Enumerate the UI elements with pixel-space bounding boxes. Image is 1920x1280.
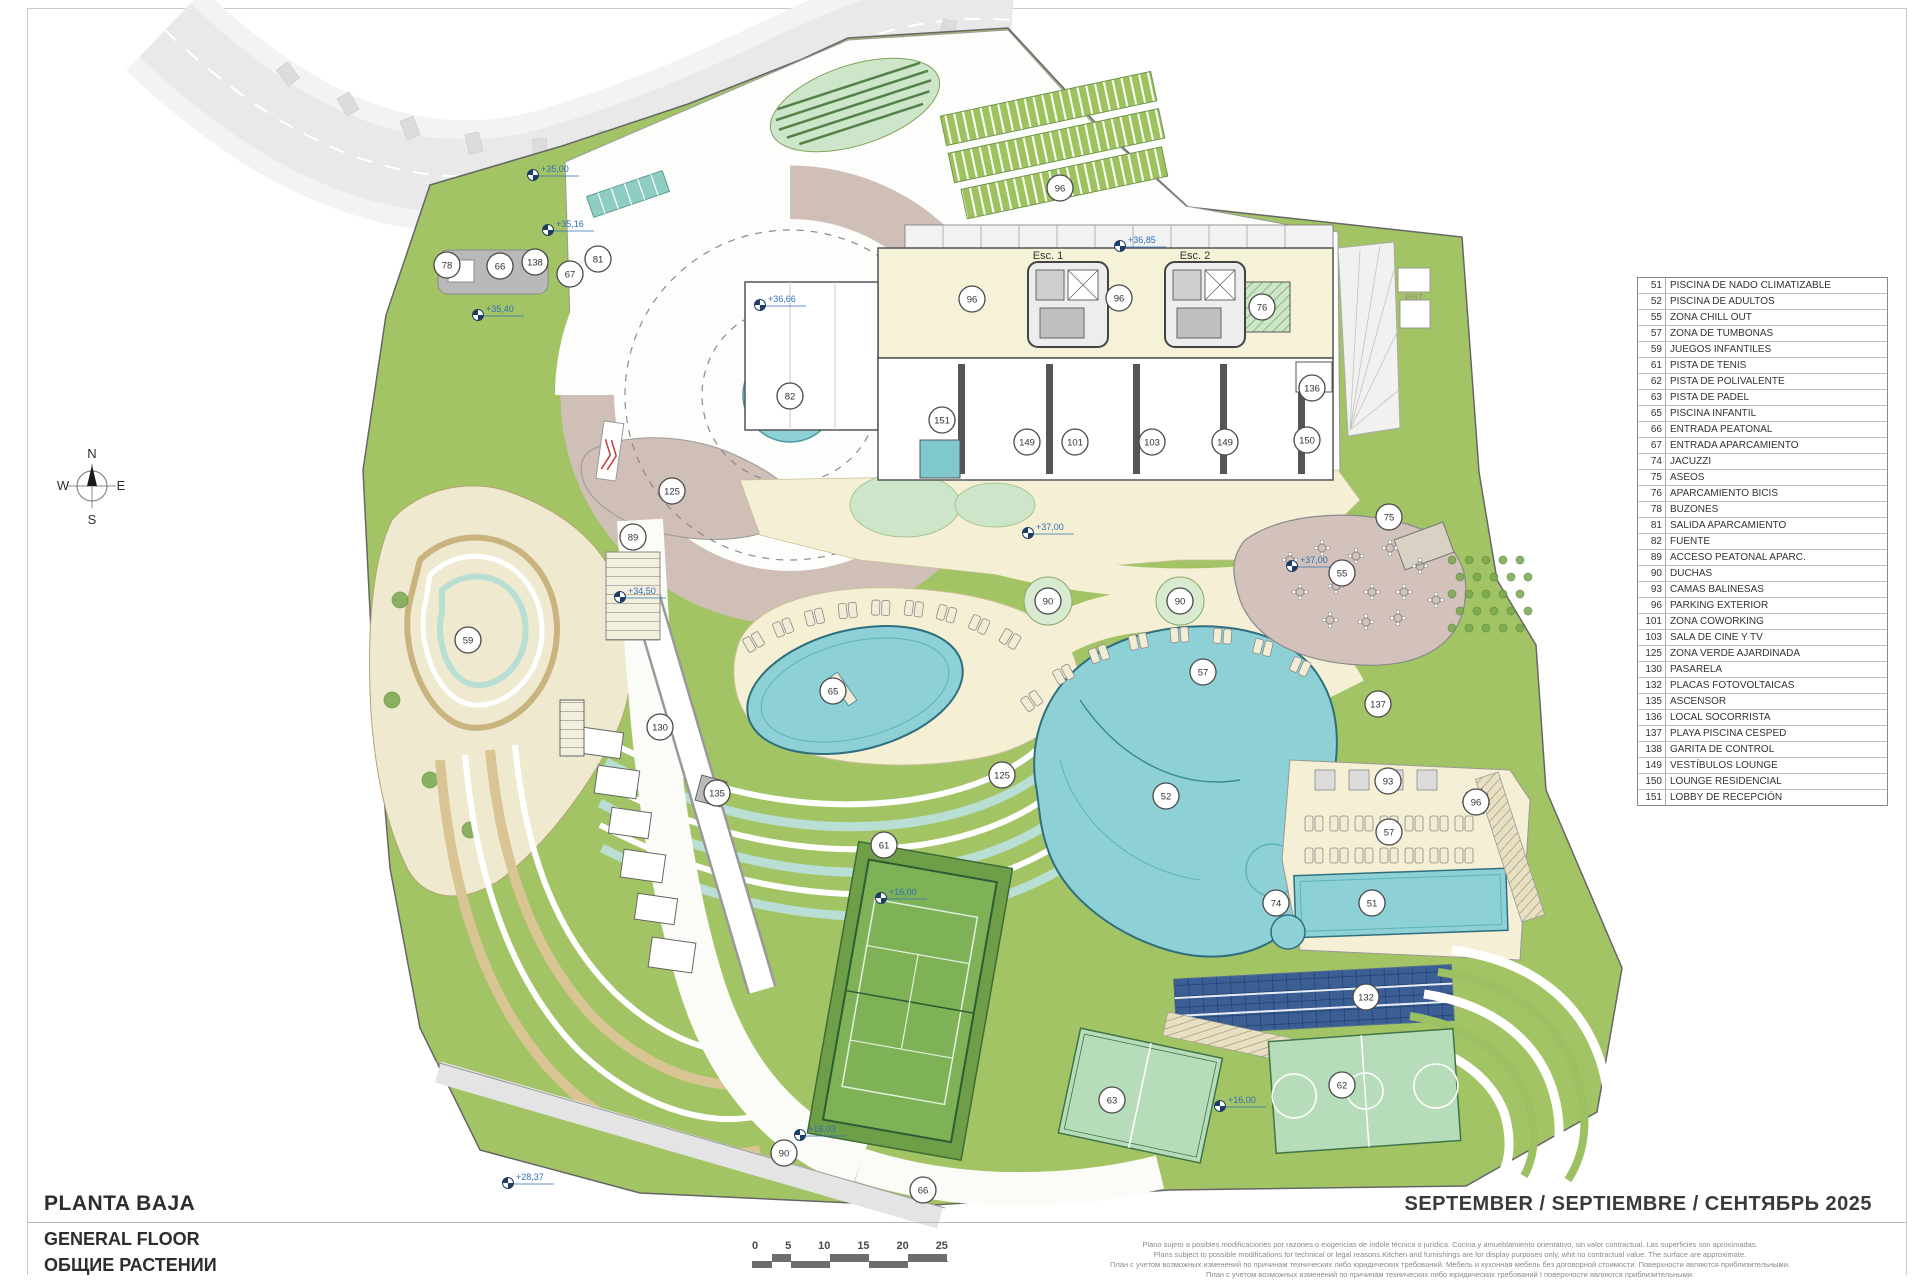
svg-text:136: 136 [1304, 383, 1320, 394]
title-rule [27, 1222, 1906, 1223]
jacuzzi [1271, 915, 1305, 949]
scale-bar: 0510152025 [752, 1240, 948, 1269]
keynote-52: 52 [1153, 783, 1179, 809]
keynote-90: 90 [1167, 588, 1193, 614]
keynote-62: 62 [1329, 1072, 1355, 1098]
svg-text:66: 66 [918, 1185, 929, 1196]
svg-text:52: 52 [1161, 791, 1172, 802]
keynote-96: 96 [1047, 175, 1073, 201]
legend-table: 51PISCINA DE NADO CLIMATIZABLE52PISCINA … [1637, 277, 1888, 806]
compass-rose: N S W E [56, 444, 128, 528]
svg-text:138: 138 [527, 257, 543, 268]
svg-text:82: 82 [785, 391, 796, 402]
legend-row: 82FUENTE [1638, 534, 1887, 550]
svg-text:57: 57 [1198, 667, 1209, 678]
scale-labels: 0510152025 [752, 1240, 948, 1252]
svg-text:+36,66: +36,66 [768, 294, 796, 304]
legend-row: 67ENTRADA APARCAMIENTO [1638, 438, 1887, 454]
svg-text:90: 90 [1043, 596, 1054, 607]
keynote-78: 78 [434, 252, 460, 278]
svg-text:63: 63 [1107, 1095, 1118, 1106]
svg-text:151: 151 [934, 415, 950, 426]
svg-text:137: 137 [1370, 699, 1386, 710]
multi-sport-court [1268, 1029, 1461, 1154]
lobby-water-feature [920, 440, 960, 478]
legend-row: 59JUEGOS INFANTILES [1638, 342, 1887, 358]
keynote-151: 151 [929, 407, 955, 433]
stair-core-1 [1028, 262, 1108, 347]
legend-row: 61PISTA DE TENIS [1638, 358, 1887, 374]
legend-row: 151LOBBY DE RECEPCIÓN [1638, 790, 1887, 805]
legend-row: 52PISCINA DE ADULTOS [1638, 294, 1887, 310]
keynote-75: 75 [1376, 504, 1402, 530]
keynote-67: 67 [557, 261, 583, 287]
pist-hut-roof [1398, 268, 1430, 292]
legend-row: 138GARITA DE CONTROL [1638, 742, 1887, 758]
svg-text:125: 125 [664, 486, 680, 497]
legend-row: 103SALA DE CINE Y TV [1638, 630, 1887, 646]
keynote-125: 125 [659, 478, 685, 504]
keynote-90: 90 [1035, 588, 1061, 614]
svg-text:+16,03: +16,03 [808, 1124, 836, 1134]
svg-text:96: 96 [1471, 797, 1482, 808]
esc1-label: Esc. 1 [1033, 250, 1064, 262]
legend-row: 75ASEOS [1638, 470, 1887, 486]
drawing-sheet: AVDA. DE MÉXICO PIST [0, 0, 1920, 1280]
svg-text:135: 135 [709, 788, 725, 799]
pist-hut [1400, 300, 1430, 328]
disclaimer: Plano sujeto a posibles modificaciones p… [1010, 1240, 1890, 1280]
legend-row: 51PISCINA DE NADO CLIMATIZABLE [1638, 278, 1887, 294]
legend-row: 132PLACAS FOTOVOLTAICAS [1638, 678, 1887, 694]
keynote-55: 55 [1329, 560, 1355, 586]
legend-row: 150LOUNGE RESIDENCIAL [1638, 774, 1887, 790]
svg-text:76: 76 [1257, 302, 1268, 313]
svg-text:+35,00: +35,00 [541, 164, 569, 174]
legend-row: 74JACUZZI [1638, 454, 1887, 470]
keynote-96: 96 [1463, 789, 1489, 815]
svg-text:125: 125 [994, 770, 1010, 781]
keynote-74: 74 [1263, 890, 1289, 916]
svg-text:57: 57 [1384, 827, 1395, 838]
svg-text:90: 90 [779, 1148, 790, 1159]
svg-text:130: 130 [652, 722, 668, 733]
keynote-149: 149 [1014, 429, 1040, 455]
keynote-138: 138 [522, 249, 548, 275]
keynote-82: 82 [777, 383, 803, 409]
keynote-93: 93 [1375, 768, 1401, 794]
legend-row: 57ZONA DE TUMBONAS [1638, 326, 1887, 342]
keynote-57: 57 [1376, 819, 1402, 845]
svg-text:+35,16: +35,16 [556, 219, 584, 229]
legend-row: 135ASCENSOR [1638, 694, 1887, 710]
compass-s: S [88, 512, 97, 527]
svg-text:65: 65 [828, 686, 839, 697]
keynote-66: 66 [487, 253, 513, 279]
scale-blocks [752, 1254, 948, 1269]
svg-text:96: 96 [1055, 183, 1066, 194]
compass-n: N [87, 446, 96, 461]
keynote-130: 130 [647, 714, 673, 740]
date-line: SEPTEMBER / SEPTIEMBRE / СЕНТЯБРЬ 2025 [1280, 1193, 1872, 1216]
svg-text:93: 93 [1383, 776, 1394, 787]
keynote-61: 61 [871, 832, 897, 858]
svg-text:132: 132 [1358, 992, 1374, 1003]
compass-e: E [117, 478, 126, 493]
svg-text:74: 74 [1271, 898, 1282, 909]
svg-text:+16,00: +16,00 [1228, 1095, 1256, 1105]
legend-row: 63PISTA DE PADEL [1638, 390, 1887, 406]
keynote-101: 101 [1062, 429, 1088, 455]
keynote-90: 90 [771, 1140, 797, 1166]
keynote-136: 136 [1299, 375, 1325, 401]
keynote-149: 149 [1212, 429, 1238, 455]
legend-row: 96PARKING EXTERIOR [1638, 598, 1887, 614]
legend-row: 62PISTA DE POLIVALENTE [1638, 374, 1887, 390]
svg-text:66: 66 [495, 261, 506, 272]
keynote-81: 81 [585, 246, 611, 272]
svg-text:+37,00: +37,00 [1300, 555, 1328, 565]
legend-row: 66ENTRADA PEATONAL [1638, 422, 1887, 438]
keynote-63: 63 [1099, 1087, 1125, 1113]
sheet-title-es: PLANTA BAJA [44, 1192, 195, 1216]
sheet-title-en: GENERAL FLOOR [44, 1229, 200, 1250]
svg-text:67: 67 [565, 269, 576, 280]
keynote-89: 89 [620, 524, 646, 550]
svg-text:150: 150 [1299, 435, 1315, 446]
keynote-135: 135 [704, 780, 730, 806]
keynote-150: 150 [1294, 427, 1320, 453]
legend-row: 136LOCAL SOCORRISTA [1638, 710, 1887, 726]
keynote-65: 65 [820, 678, 846, 704]
svg-text:149: 149 [1217, 437, 1233, 448]
svg-text:101: 101 [1067, 437, 1083, 448]
legend-row: 93CAMAS BALINESAS [1638, 582, 1887, 598]
svg-text:81: 81 [593, 254, 604, 265]
keynote-137: 137 [1365, 691, 1391, 717]
svg-text:75: 75 [1384, 512, 1395, 523]
svg-text:+36,85: +36,85 [1128, 235, 1156, 245]
svg-text:103: 103 [1144, 437, 1160, 448]
stair-core-2 [1165, 262, 1245, 347]
svg-text:96: 96 [967, 294, 978, 305]
sheet-title-ru: ОБЩИЕ РАСТЕНИИ [44, 1255, 217, 1276]
svg-text:+37,00: +37,00 [1036, 522, 1064, 532]
svg-text:55: 55 [1337, 568, 1348, 579]
site-plan: AVDA. DE MÉXICO PIST [0, 0, 1920, 1280]
svg-text:90: 90 [1175, 596, 1186, 607]
legend-row: 149VESTÍBULOS LOUNGE [1638, 758, 1887, 774]
keynote-66: 66 [910, 1177, 936, 1203]
svg-text:96: 96 [1114, 293, 1125, 304]
legend-row: 76APARCAMIENTO BICIS [1638, 486, 1887, 502]
svg-text:+16,00: +16,00 [889, 887, 917, 897]
svg-text:61: 61 [879, 840, 890, 851]
legend-row: 137PLAYA PISCINA CESPED [1638, 726, 1887, 742]
keynote-132: 132 [1353, 984, 1379, 1010]
svg-text:59: 59 [463, 635, 474, 646]
legend-row: 130PASARELA [1638, 662, 1887, 678]
legend-row: 101ZONA COWORKING [1638, 614, 1887, 630]
svg-text:+35,40: +35,40 [486, 304, 514, 314]
compass-needle [87, 465, 97, 486]
svg-text:149: 149 [1019, 437, 1035, 448]
elevation-marker: +28,37 [503, 1172, 555, 1189]
svg-text:89: 89 [628, 532, 639, 543]
svg-text:+28,37: +28,37 [516, 1172, 544, 1182]
keynote-125: 125 [989, 762, 1015, 788]
keynote-51: 51 [1359, 890, 1385, 916]
keynote-96: 96 [959, 286, 985, 312]
svg-text:62: 62 [1337, 1080, 1348, 1091]
compass-w: W [57, 478, 70, 493]
legend-row: 78BUZONES [1638, 502, 1887, 518]
keynote-59: 59 [455, 627, 481, 653]
legend-row: 90DUCHAS [1638, 566, 1887, 582]
keynote-57: 57 [1190, 659, 1216, 685]
title-block: PLANTA BAJA [44, 1192, 195, 1216]
pist-label: PIST [1405, 293, 1423, 302]
esc2-label: Esc. 2 [1180, 250, 1211, 262]
svg-text:78: 78 [442, 260, 453, 271]
legend-row: 81SALIDA APARCAMIENTO [1638, 518, 1887, 534]
svg-text:+34,50: +34,50 [628, 586, 656, 596]
legend-body: 51PISCINA DE NADO CLIMATIZABLE52PISCINA … [1638, 278, 1887, 805]
keynote-76: 76 [1249, 294, 1275, 320]
legend-row: 125ZONA VERDE AJARDINADA [1638, 646, 1887, 662]
legend-row: 89ACCESO PEATONAL APARC. [1638, 550, 1887, 566]
keynote-103: 103 [1139, 429, 1165, 455]
legend-row: 65PISCINA INFANTIL [1638, 406, 1887, 422]
keynote-96: 96 [1106, 285, 1132, 311]
legend-row: 55ZONA CHILL OUT [1638, 310, 1887, 326]
svg-text:51: 51 [1367, 898, 1378, 909]
